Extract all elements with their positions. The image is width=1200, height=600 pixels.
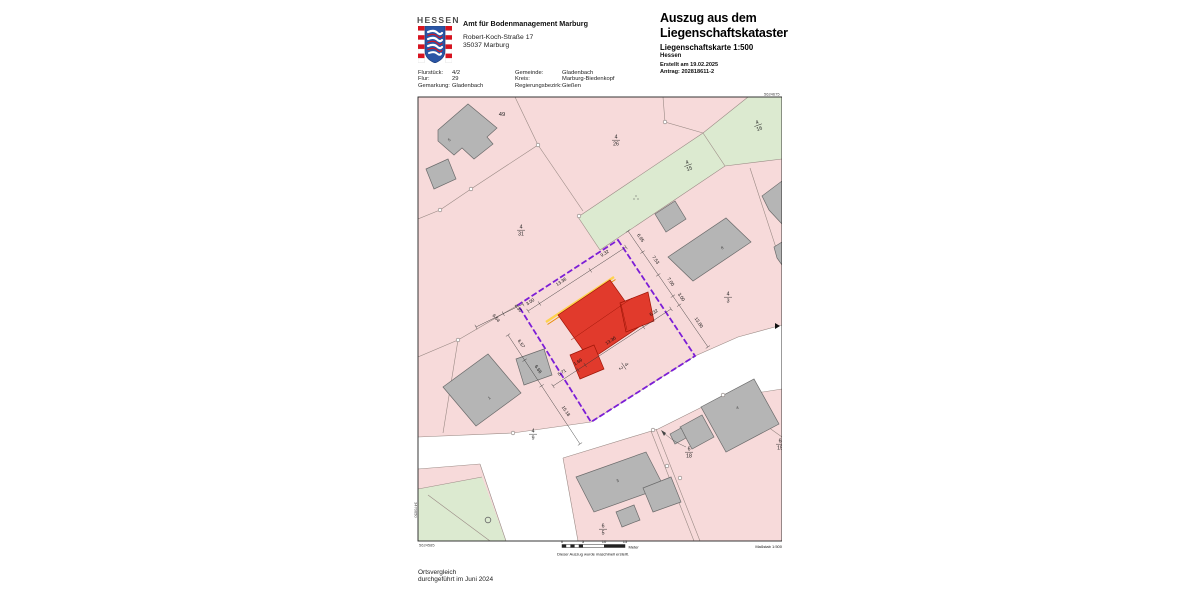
gemeinde-label: Gemeinde: — [515, 70, 543, 76]
request-number: Antrag: 202818611-2 — [660, 69, 714, 75]
parcel-label-49: 49 — [499, 112, 505, 118]
svg-text:5: 5 — [602, 530, 605, 536]
svg-text:6: 6 — [688, 447, 691, 453]
regierungsbezirk-value: Gießen — [562, 83, 581, 89]
regierungsbezirk-label: Regierungsbezirk: — [515, 83, 562, 89]
grid-coordinate-left-edge: 3470650 — [414, 502, 419, 518]
scale-ratio: Maßstab 1:500 — [755, 544, 782, 549]
office-name: Amt für Bodenmanagement Marburg — [463, 19, 588, 28]
flag-stripes-right — [446, 26, 453, 63]
hessen-logo-text: HESSEN — [417, 15, 460, 25]
office-city: 35037 Marburg — [463, 42, 509, 49]
svg-text:4: 4 — [727, 292, 730, 298]
hessen-coat-of-arms — [418, 26, 452, 63]
svg-text:3: 3 — [727, 298, 730, 304]
gemarkung-value: Gladenbach — [452, 83, 483, 89]
kreis-label: Kreis: — [515, 76, 530, 82]
map-subtitle: Liegenschaftskarte 1:500 — [660, 43, 753, 52]
footer-ortsvergleich: Ortsvergleich — [418, 569, 456, 576]
title-line-2: Liegenschaftskataster — [660, 26, 800, 41]
machine-note: Dieser Auszug wurde maschinell erstellt. — [557, 552, 629, 557]
office-street: Robert-Koch-Straße 17 — [463, 34, 533, 41]
flurstueck-label: Flurstück: — [418, 70, 443, 76]
flurstueck-value: 4/2 — [452, 70, 460, 76]
flur-value: 29 — [452, 76, 458, 82]
svg-text:6: 6 — [602, 524, 605, 530]
state-label: Hessen — [660, 53, 681, 59]
scale-tick-10: 10 — [602, 539, 607, 544]
footer-date: durchgeführt im Juni 2024 — [418, 576, 493, 583]
flag-stripes-left — [418, 26, 425, 63]
gemarkung-label: Gemarkung: — [418, 83, 450, 89]
flur-label: Flur: — [418, 76, 430, 82]
grid-coordinate-bottom-left: 5624585 — [419, 543, 435, 548]
created-date: Erstellt am 19.02.2025 — [660, 62, 718, 68]
svg-text:4: 4 — [615, 135, 618, 141]
map-content: 3.00 13.36 9.32 5.71 1.69 13.36 6.32 6.9… — [418, 97, 782, 541]
svg-text:18: 18 — [686, 453, 692, 459]
title-line-1: Auszug aus dem — [660, 11, 800, 26]
svg-text:31: 31 — [518, 231, 524, 237]
gemeinde-value: Gladenbach — [562, 70, 593, 76]
svg-text:9: 9 — [532, 435, 535, 441]
svg-text:6: 6 — [779, 439, 782, 445]
svg-text:4: 4 — [520, 225, 523, 231]
svg-text:26: 26 — [613, 141, 619, 147]
cadastral-map: 3.00 13.36 9.32 5.71 1.69 13.36 6.32 6.9… — [410, 91, 782, 569]
svg-text:15: 15 — [777, 445, 782, 451]
cadastral-extract-page: HESSEN Amt für Bodenmanagement Marburg R… — [0, 0, 1200, 600]
svg-text:4: 4 — [532, 429, 535, 435]
scale-unit: Meter — [629, 544, 640, 549]
scale-tick-15: 15 — [623, 539, 628, 544]
kreis-value: Marburg-Biedenkopf — [562, 76, 615, 82]
grid-coordinate-top-right: 5624675 — [764, 92, 780, 97]
document-title: Auszug aus dem Liegenschaftskataster — [660, 11, 800, 40]
